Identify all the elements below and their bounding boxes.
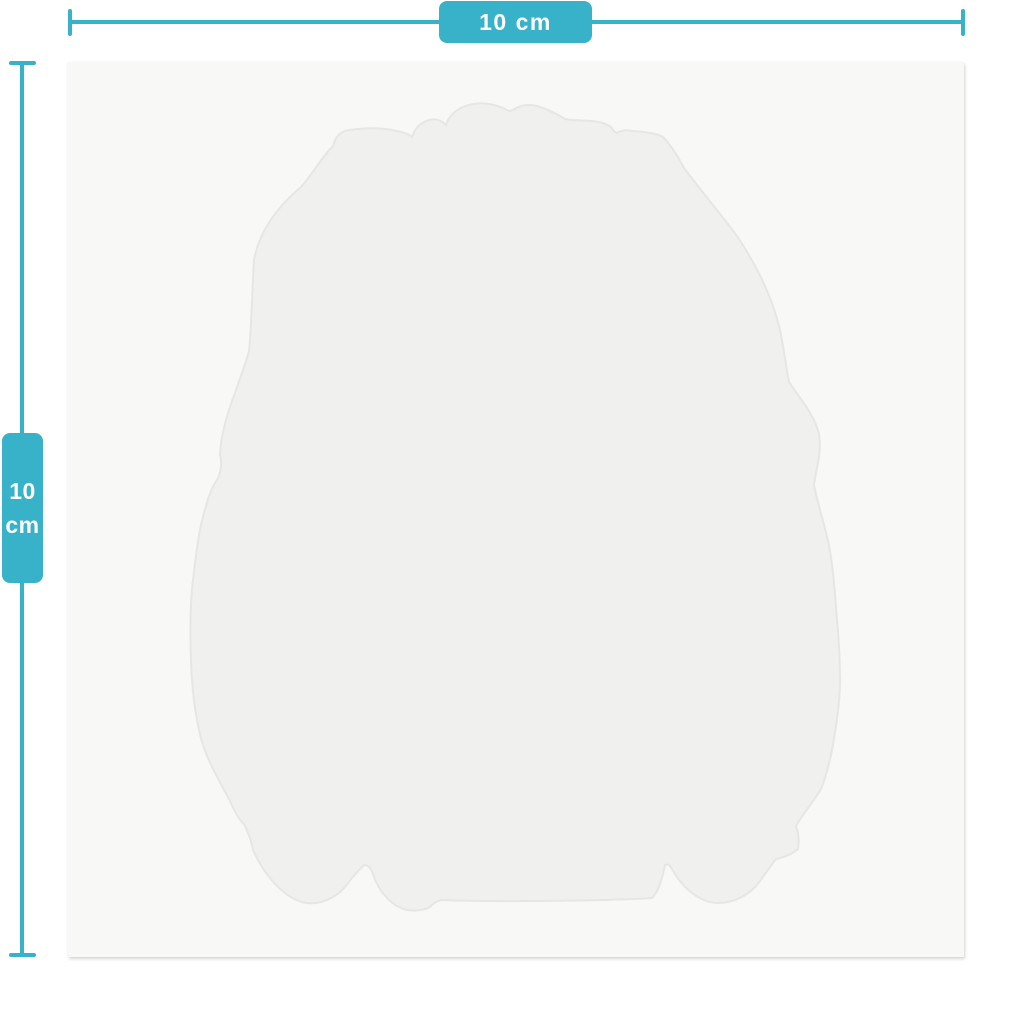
- height-dimension-bottom-cap: [9, 953, 36, 957]
- die-cut-sticker-shape: [68, 62, 964, 957]
- height-dimension-label: 10 cm: [2, 433, 43, 583]
- height-dimension-label-unit: cm: [5, 508, 39, 542]
- height-dimension-label-value: 10: [9, 474, 36, 508]
- product-dimension-image: 10 cm 10 cm: [0, 0, 1024, 1024]
- width-dimension-left-cap: [68, 9, 72, 36]
- height-dimension-top-cap: [9, 61, 36, 65]
- width-dimension-label: 10 cm: [439, 1, 592, 43]
- width-dimension-label-text: 10 cm: [479, 9, 552, 36]
- sticker-backing-sheet: [68, 62, 964, 957]
- die-cut-sticker-outline: [190, 103, 840, 910]
- width-dimension-right-cap: [961, 9, 965, 36]
